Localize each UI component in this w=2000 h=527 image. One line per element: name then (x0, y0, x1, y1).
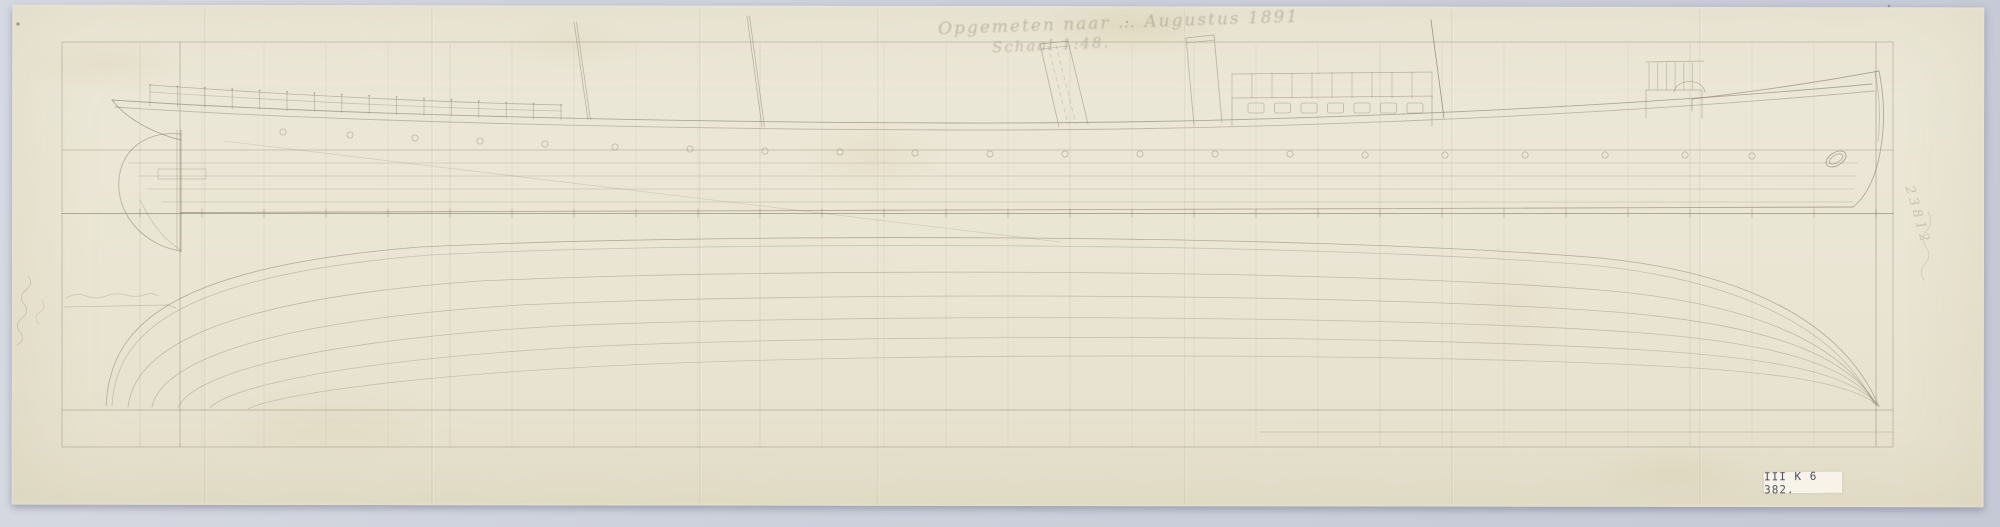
mast-aft (574, 22, 591, 120)
station-grid-lines (140, 44, 1876, 446)
scanned-ship-plan-sheet: Opgemeten naar … Augustus 1891 Schaal 1:… (0, 0, 2000, 527)
porthole-row (280, 129, 1755, 159)
construction-diagonal (224, 141, 1060, 242)
ventilator-stack (1186, 35, 1222, 125)
deckhouse-windows (1248, 103, 1423, 113)
ship-plan-drawing (0, 0, 2000, 527)
half-breadth-plan (62, 238, 1893, 410)
fore-structure-posts (1649, 63, 1693, 90)
deckhouse (1232, 72, 1432, 126)
inventory-number-stamp: III K 6 382. (1764, 472, 1842, 494)
deckhouse-railing-stanchions (1232, 72, 1432, 98)
paper-creases (205, 10, 1701, 504)
sheer-plan-waterlines (62, 150, 1893, 214)
illegible-pencil-note (66, 294, 158, 298)
inventory-number-text: III K 6 382. (1764, 469, 1842, 496)
hawse-hole (1823, 148, 1849, 171)
mast-main (747, 16, 765, 127)
fore-deckhouse (1646, 61, 1705, 118)
